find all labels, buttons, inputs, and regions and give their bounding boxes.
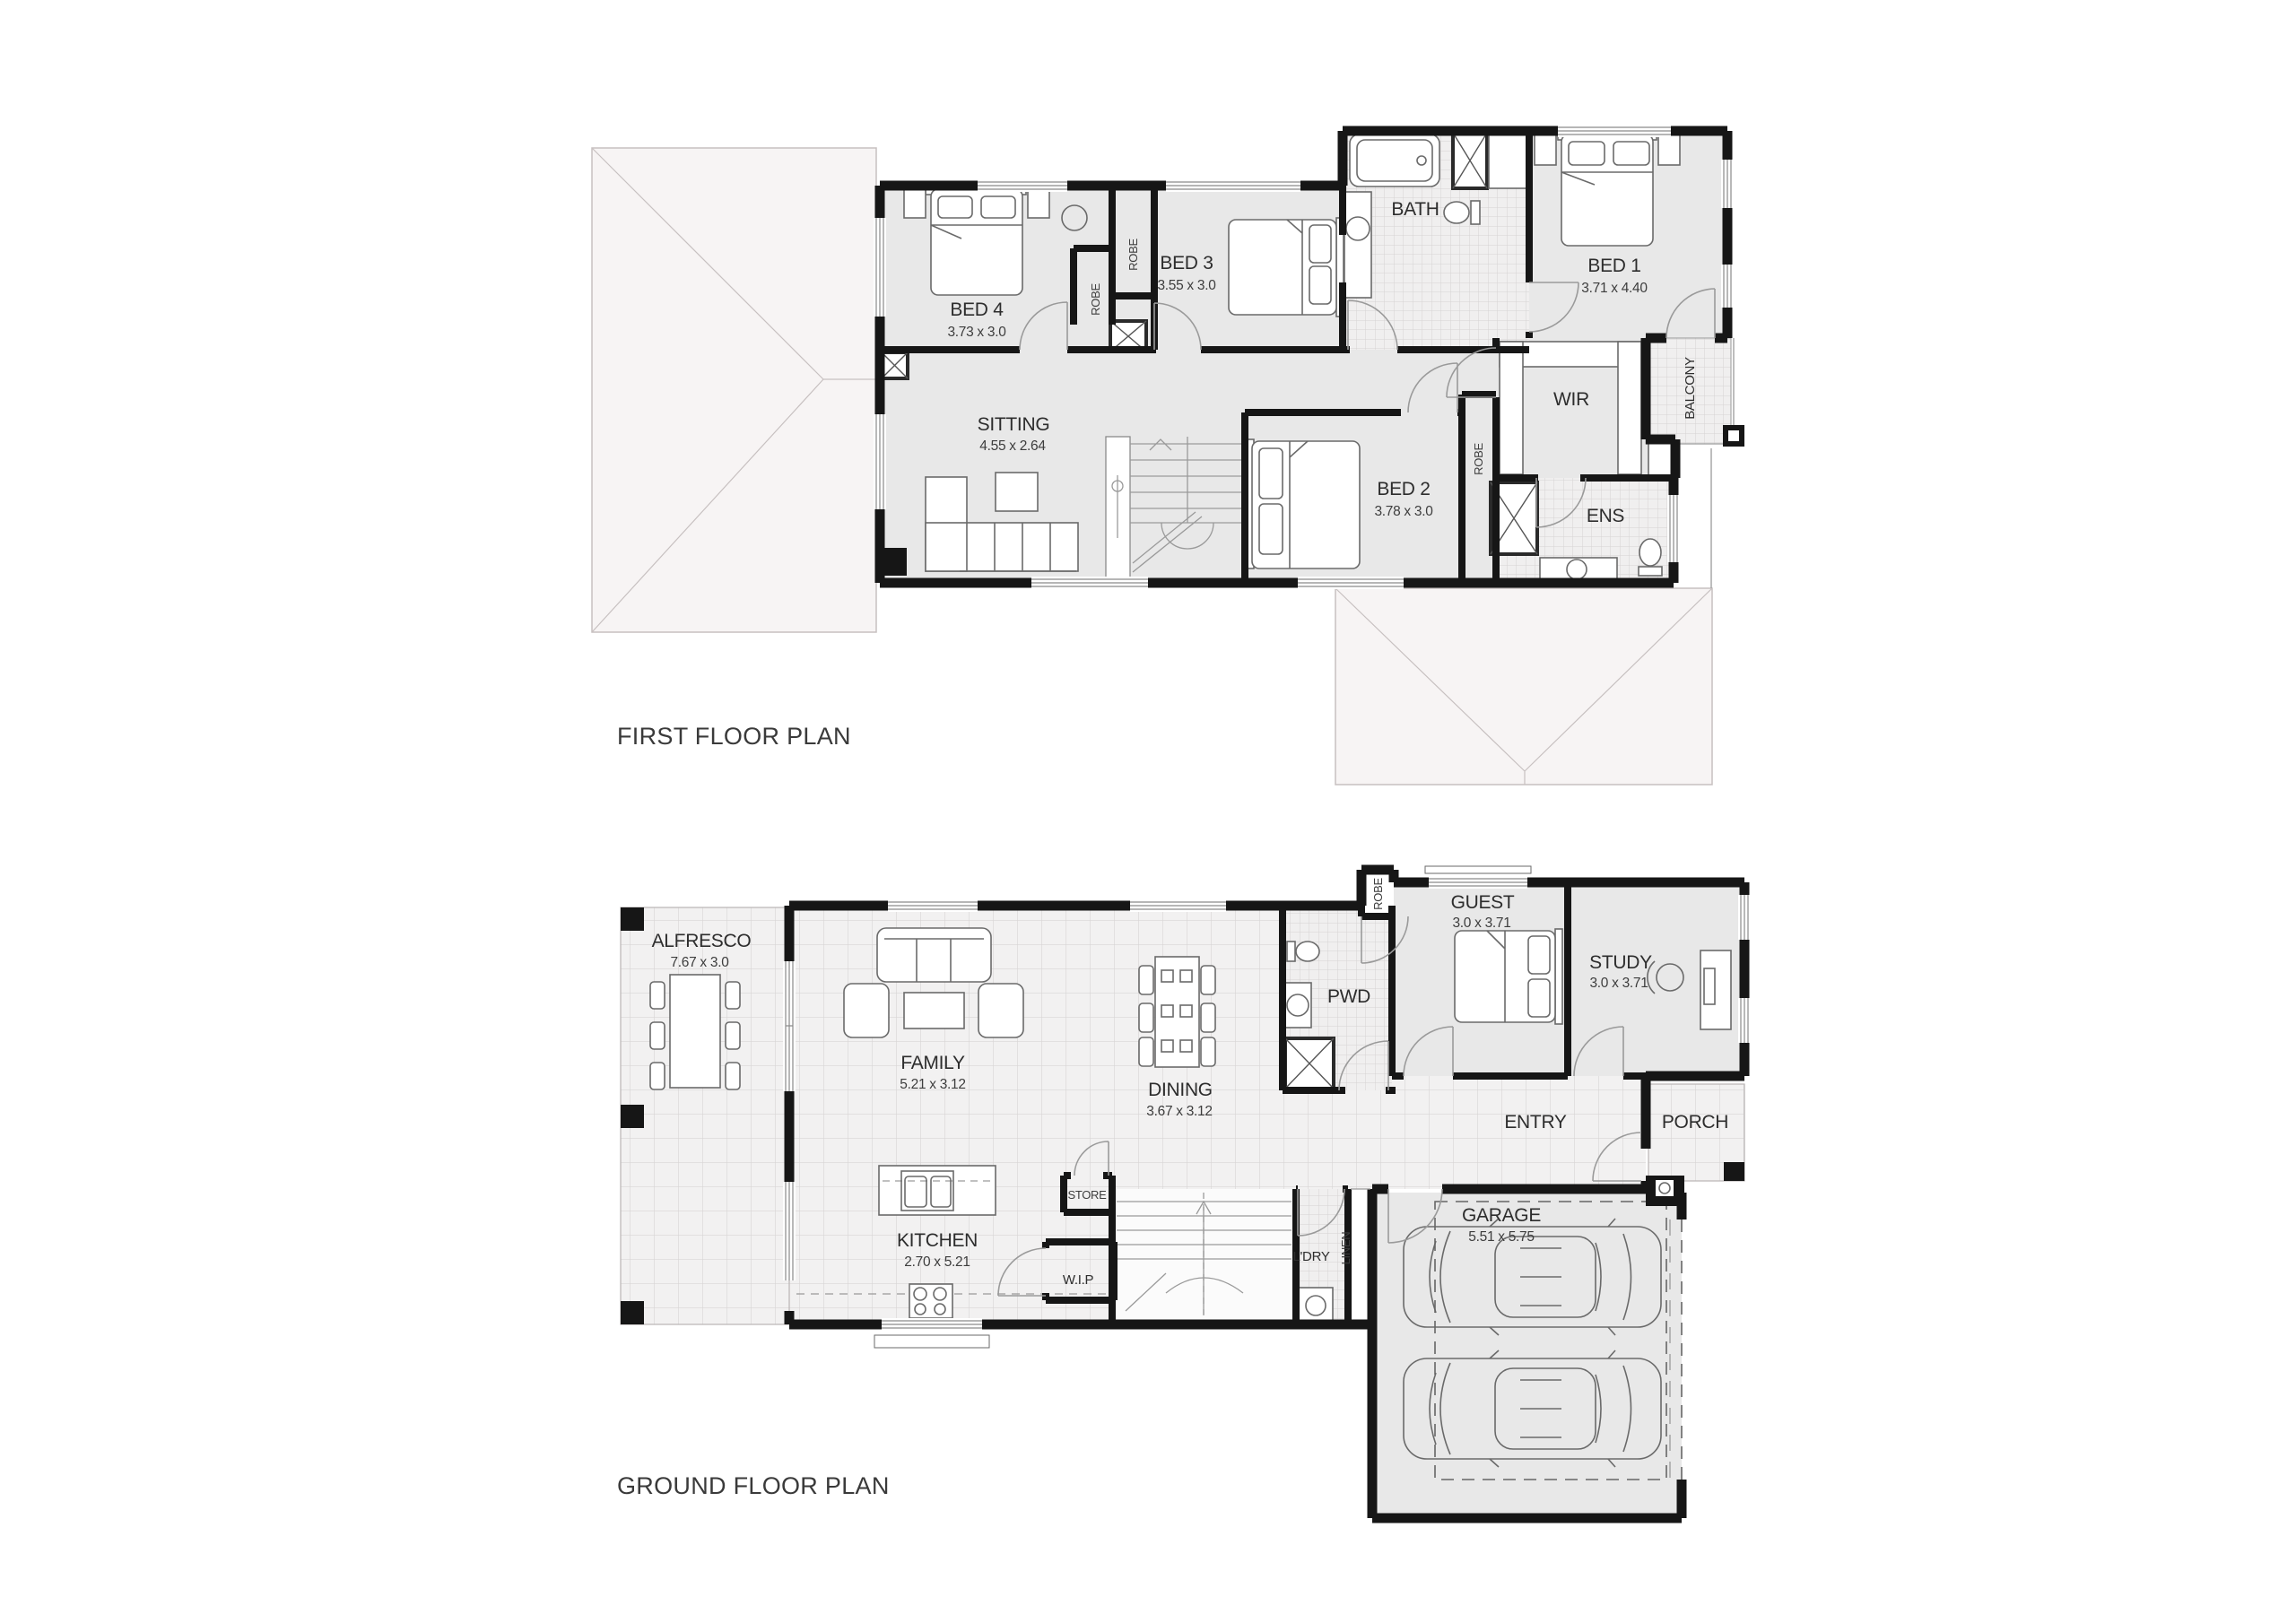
laundry-tub-icon bbox=[1299, 1288, 1333, 1324]
armchair-icon bbox=[978, 984, 1023, 1037]
dining-label: DINING bbox=[1148, 1080, 1213, 1100]
family-sofa-icon bbox=[877, 928, 991, 982]
linen-label: LINEN bbox=[1339, 1232, 1352, 1265]
roof-left bbox=[592, 148, 876, 632]
alfresco-post bbox=[621, 1301, 644, 1324]
bathtub-icon bbox=[1350, 135, 1439, 187]
bath-label: BATH bbox=[1391, 199, 1439, 220]
wip-label: W.I.P bbox=[1063, 1272, 1094, 1288]
family-dims: 5.21 x 3.12 bbox=[900, 1077, 965, 1092]
robe-bed2-label: ROBE bbox=[1472, 443, 1485, 475]
pwd-toilet-icon bbox=[1287, 942, 1319, 961]
bed2-bed-icon bbox=[1247, 439, 1360, 568]
ens-basin-icon bbox=[1540, 558, 1617, 581]
pwd-basin-icon bbox=[1284, 983, 1311, 1028]
bed3-bed-icon bbox=[1229, 218, 1344, 317]
bed2-dims: 3.78 x 3.0 bbox=[1374, 504, 1433, 519]
porch-post bbox=[1724, 1162, 1744, 1181]
kitchen-label: KITCHEN bbox=[897, 1230, 978, 1251]
alfresco-post bbox=[621, 907, 644, 931]
ens-label: ENS bbox=[1587, 506, 1625, 526]
armchair-icon bbox=[844, 984, 889, 1037]
bed4-dims: 3.73 x 3.0 bbox=[947, 325, 1006, 340]
floor-plan-drawing: BED 4 3.73 x 3.0 BED 3 3.55 x 3.0 BATH B… bbox=[0, 0, 2296, 1623]
bed2-label: BED 2 bbox=[1377, 479, 1430, 499]
cooktop-icon bbox=[909, 1284, 952, 1318]
kitchen-dims: 2.70 x 5.21 bbox=[904, 1254, 970, 1270]
alfresco-table-icon bbox=[650, 975, 740, 1089]
bed1-label: BED 1 bbox=[1587, 256, 1640, 276]
bed4-label: BED 4 bbox=[950, 299, 1004, 320]
robe-bed3-label: ROBE bbox=[1126, 239, 1140, 271]
ground-floor-plan-title: GROUND FLOOR PLAN bbox=[617, 1472, 890, 1500]
alfresco-dims: 7.67 x 3.0 bbox=[670, 955, 729, 970]
wall-post-box bbox=[882, 352, 908, 378]
bath-vanity bbox=[1489, 133, 1526, 188]
balcony-label: BALCONY bbox=[1683, 357, 1698, 420]
robe-guest-label: ROBE bbox=[1371, 878, 1385, 910]
bath-basin-icon bbox=[1344, 192, 1371, 298]
entry-label: ENTRY bbox=[1504, 1112, 1567, 1133]
family-label: FAMILY bbox=[900, 1053, 965, 1073]
kitchen-island-icon bbox=[879, 1166, 996, 1215]
ground-floor-plan: ALFRESCO 7.67 x 3.0 FAMILY 5.21 x 3.12 D… bbox=[621, 866, 1751, 1518]
bed3-dims: 3.55 x 3.0 bbox=[1157, 278, 1216, 293]
bath-toilet-icon bbox=[1444, 201, 1480, 224]
store-label: STORE bbox=[1067, 1188, 1107, 1202]
garage-label: GARAGE bbox=[1462, 1205, 1541, 1226]
pwd-shower-icon bbox=[1285, 1038, 1334, 1089]
guest-dims: 3.0 x 3.71 bbox=[1452, 916, 1510, 931]
dining-dims: 3.67 x 3.12 bbox=[1146, 1104, 1212, 1119]
bed3-label: BED 3 bbox=[1160, 253, 1213, 273]
coffee-table-icon bbox=[904, 993, 964, 1028]
bed1-dims: 3.71 x 4.40 bbox=[1581, 281, 1648, 296]
ens-toilet-icon bbox=[1639, 539, 1662, 576]
first-floor-plan: BED 4 3.73 x 3.0 BED 3 3.55 x 3.0 BATH B… bbox=[592, 125, 1744, 785]
dining-table-icon bbox=[1139, 957, 1215, 1067]
robe-bed4-label: ROBE bbox=[1089, 283, 1102, 316]
wir-label: WIR bbox=[1553, 389, 1589, 410]
porch-label: PORCH bbox=[1662, 1112, 1728, 1133]
floor-plan-page: { "first_floor": { "title": "FIRST FLOOR… bbox=[0, 0, 2296, 1623]
side-table-icon bbox=[996, 473, 1038, 511]
alfresco-post bbox=[621, 1105, 644, 1128]
study-dims: 3.0 x 3.71 bbox=[1589, 976, 1648, 991]
garage-dims: 5.51 x 5.75 bbox=[1468, 1229, 1534, 1245]
alfresco-label: ALFRESCO bbox=[652, 931, 752, 951]
guest-label: GUEST bbox=[1451, 892, 1515, 913]
ldry-label: L'DRY bbox=[1292, 1249, 1329, 1264]
linen-cupboard bbox=[1648, 441, 1674, 476]
study-label: STUDY bbox=[1589, 952, 1652, 973]
guest-bed-icon bbox=[1455, 929, 1562, 1024]
sitting-label: SITTING bbox=[978, 414, 1050, 435]
pwd-label: PWD bbox=[1327, 986, 1370, 1007]
balcony-post bbox=[1723, 425, 1744, 447]
bath-shower-icon bbox=[1453, 133, 1487, 188]
sitting-dims: 4.55 x 2.64 bbox=[979, 438, 1046, 454]
first-floor-plan-title: FIRST FLOOR PLAN bbox=[617, 723, 851, 751]
